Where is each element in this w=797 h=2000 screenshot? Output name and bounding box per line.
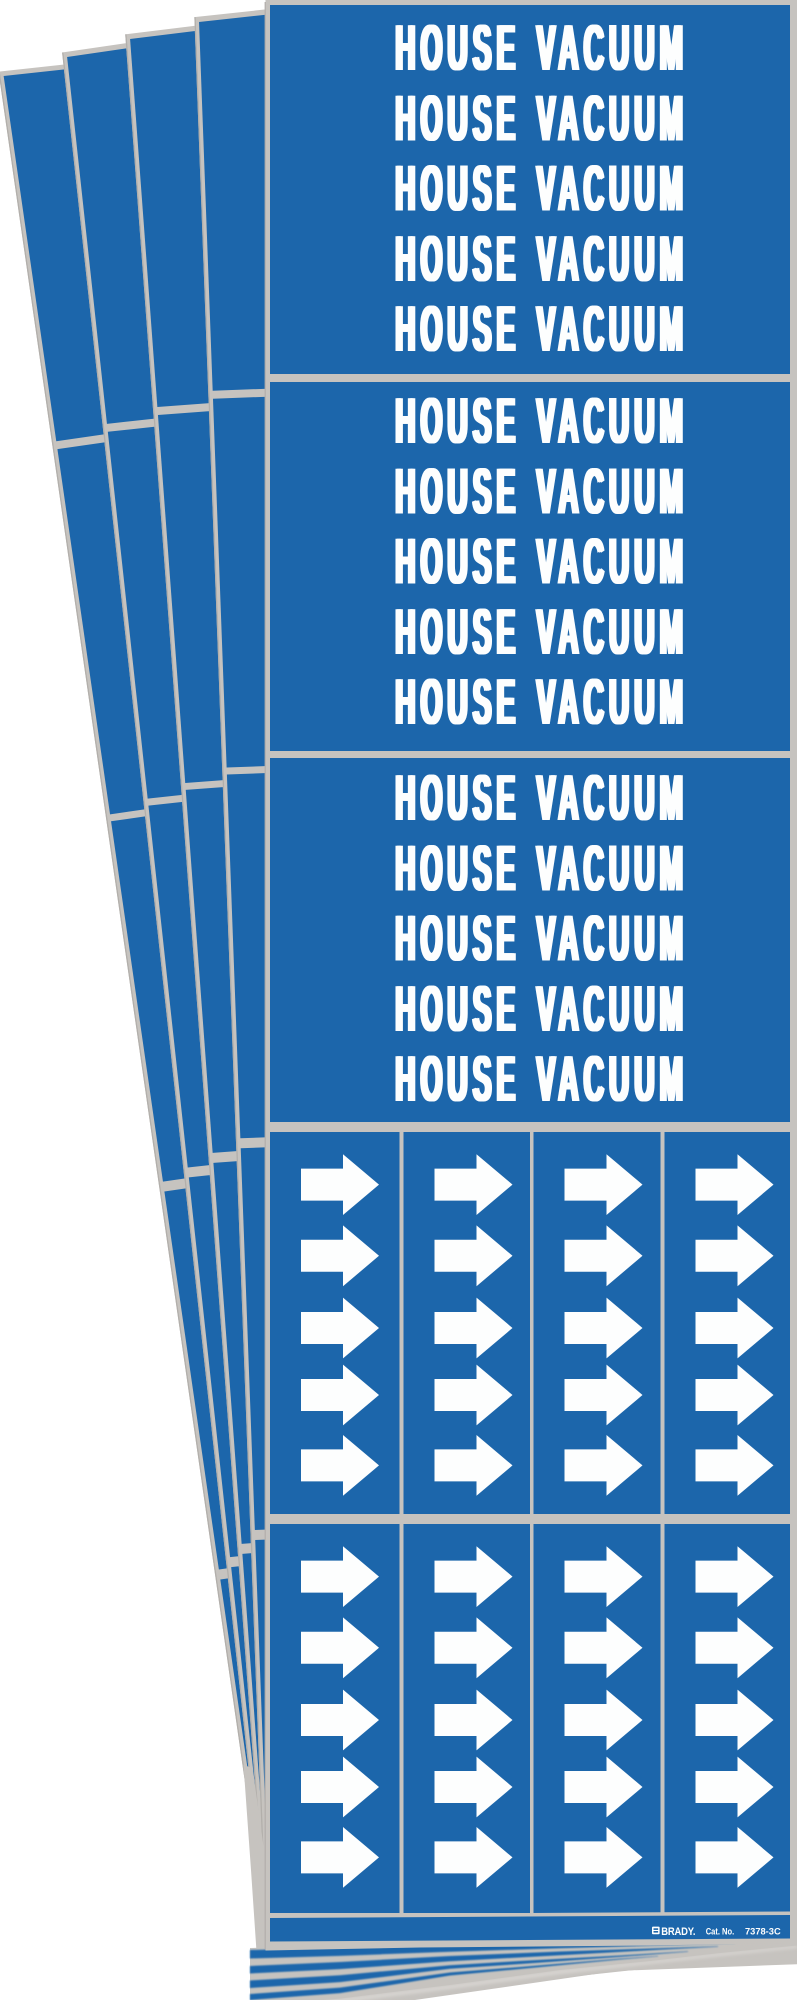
svg-text:HOUSE VACUUM: HOUSE VACUUM (397, 595, 690, 668)
svg-text:HOUSE VACUUM: HOUSE VACUUM (397, 385, 690, 458)
svg-text:HOUSE VACUUM: HOUSE VACUUM (397, 455, 690, 528)
svg-text:HOUSE VACUUM: HOUSE VACUUM (397, 902, 690, 975)
svg-text:HOUSE VACUUM: HOUSE VACUUM (397, 1043, 690, 1116)
svg-text:HOUSE VACUUM: HOUSE VACUUM (397, 293, 690, 366)
svg-text:HOUSE VACUUM: HOUSE VACUUM (397, 82, 690, 155)
svg-text:HOUSE VACUUM: HOUSE VACUUM (397, 525, 690, 598)
svg-text:HOUSE VACUUM: HOUSE VACUUM (397, 152, 690, 225)
svg-text:HOUSE VACUUM: HOUSE VACUUM (397, 666, 690, 739)
svg-text:HOUSE VACUUM: HOUSE VACUUM (397, 222, 690, 295)
svg-text:Cat. No.: Cat. No. (706, 1926, 735, 1937)
svg-text:HOUSE VACUUM: HOUSE VACUUM (397, 762, 690, 835)
svg-text:BRADY.: BRADY. (661, 1926, 695, 1938)
svg-text:HOUSE VACUUM: HOUSE VACUUM (397, 832, 690, 905)
svg-text:7378-3C: 7378-3C (745, 1926, 781, 1936)
svg-text:HOUSE VACUUM: HOUSE VACUUM (397, 972, 690, 1045)
svg-text:HOUSE VACUUM: HOUSE VACUUM (397, 12, 690, 85)
